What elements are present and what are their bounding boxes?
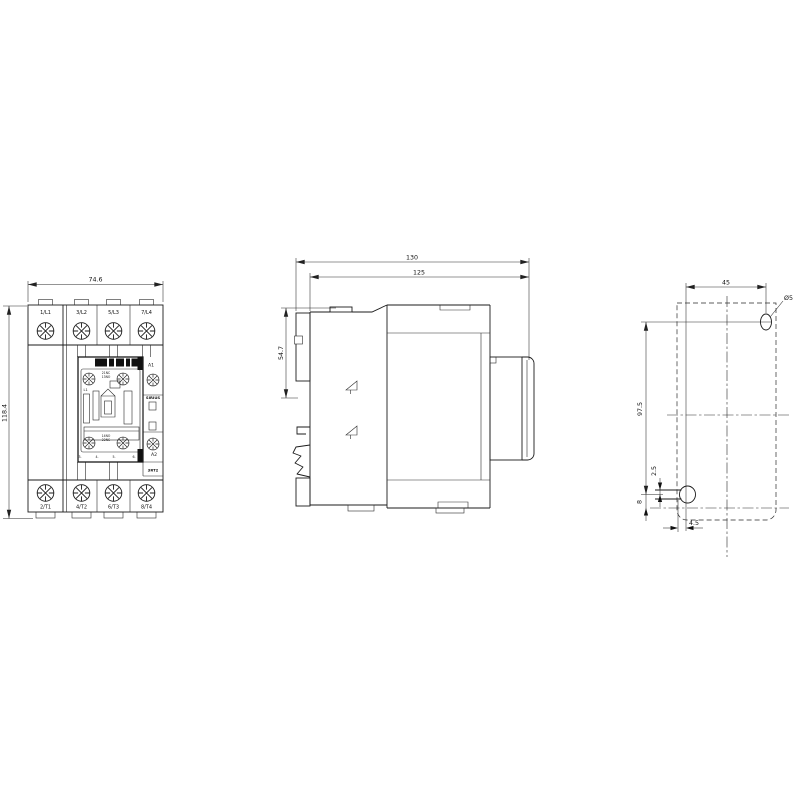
aux-screw xyxy=(83,373,95,385)
terminal-label-3L2: 3/L2 xyxy=(76,310,87,316)
hole-diameter-label: Ø5 xyxy=(784,294,793,302)
release-slot-icon xyxy=(346,426,357,439)
pole-mark-4: 4. xyxy=(95,455,98,459)
dimensional-drawing-page: 74.6 118.4 xyxy=(0,0,800,800)
front-width-dimension: 74.6 xyxy=(28,277,163,303)
side-front-protrusion xyxy=(490,357,534,460)
side-view: 130 125 54.7 xyxy=(278,255,534,514)
pole-mark-5: 5. xyxy=(112,455,115,459)
terminal-screw xyxy=(105,323,122,340)
coil-terminal-column: A1 SIRIUS A2 3RT2 xyxy=(143,357,163,476)
slot-length-dimension: 4.5 xyxy=(663,500,703,532)
terminal-screw xyxy=(138,485,155,502)
dim-hole-spacing-h: 45 xyxy=(722,280,730,287)
slot-edge-dimension: 8 xyxy=(637,495,649,522)
terminal-label-8T4: 8/T4 xyxy=(141,505,152,511)
terminal-label-6T3: 6/T3 xyxy=(108,505,119,511)
dim-depth-total: 130 xyxy=(406,255,418,262)
dim-slot-length: 4.5 xyxy=(689,520,699,527)
brand-sirius: SIRIUS xyxy=(146,395,161,400)
coil-screw-a2 xyxy=(147,438,159,450)
drill-plan-view: 45 Ø5 97.5 2.5 8 xyxy=(637,280,793,558)
coil-marking-l1: L1 xyxy=(84,388,88,392)
aux-marking-13no: 13NO xyxy=(102,375,111,379)
aux-screw xyxy=(117,373,129,385)
din-rail-side xyxy=(293,313,310,506)
dim-hole-spacing-v: 97.5 xyxy=(637,402,644,416)
terminal-label-4T2: 4/T2 xyxy=(76,505,87,511)
coil-screw-a1 xyxy=(147,374,159,386)
slot-offset-dimension: 2.5 xyxy=(651,466,662,507)
pole-mark-3: 3. xyxy=(78,455,81,459)
dimensional-drawing: 74.6 118.4 xyxy=(0,0,800,800)
mounting-hole-top-right: Ø5 xyxy=(761,294,793,330)
terminal-screw xyxy=(73,323,90,340)
release-slot-icon xyxy=(346,381,357,394)
brand-band xyxy=(95,359,139,367)
terminal-screw xyxy=(37,485,54,502)
coil-terminal-a2: A2 xyxy=(151,452,157,458)
terminal-screw xyxy=(37,323,54,340)
side-body xyxy=(310,305,490,513)
terminal-label-7L4: 7/L4 xyxy=(141,310,152,316)
front-view: 74.6 118.4 xyxy=(2,277,164,519)
front-center-module: 21NC 13NO 14NO 22NC L1 3. 4. 5. 6. xyxy=(78,357,143,462)
side-rail-dimension: 54.7 xyxy=(278,308,336,398)
dim-depth-body: 125 xyxy=(413,270,425,277)
dim-front-height: 118.4 xyxy=(2,404,9,422)
series-3rt2: 3RT2 xyxy=(148,468,159,473)
dim-front-width: 74.6 xyxy=(88,277,102,284)
terminal-screw xyxy=(73,485,90,502)
terminal-screw xyxy=(105,485,122,502)
front-top-terminals: 1/L1 3/L2 5/L3 7/L4 xyxy=(37,310,155,339)
coil-terminal-a1: A1 xyxy=(148,363,154,369)
hole-spacing-vertical-dimension: 97.5 xyxy=(637,322,663,495)
aux-screw xyxy=(117,437,129,449)
dim-slot-to-edge: 8 xyxy=(637,500,644,504)
terminal-screw xyxy=(138,323,155,340)
dim-top-to-rail: 54.7 xyxy=(278,346,285,360)
aux-screw xyxy=(83,437,95,449)
terminal-label-2T1: 2/T1 xyxy=(40,505,51,511)
hole-spacing-horizontal-dimension: 45 xyxy=(686,280,766,288)
terminal-label-5L3: 5/L3 xyxy=(108,310,119,316)
front-bottom-terminals: 2/T1 4/T2 6/T3 8/T4 xyxy=(37,485,155,511)
pole-mark-6: 6. xyxy=(132,455,135,459)
terminal-label-1L1: 1/L1 xyxy=(40,310,51,316)
dim-slot-offset: 2.5 xyxy=(651,466,658,476)
